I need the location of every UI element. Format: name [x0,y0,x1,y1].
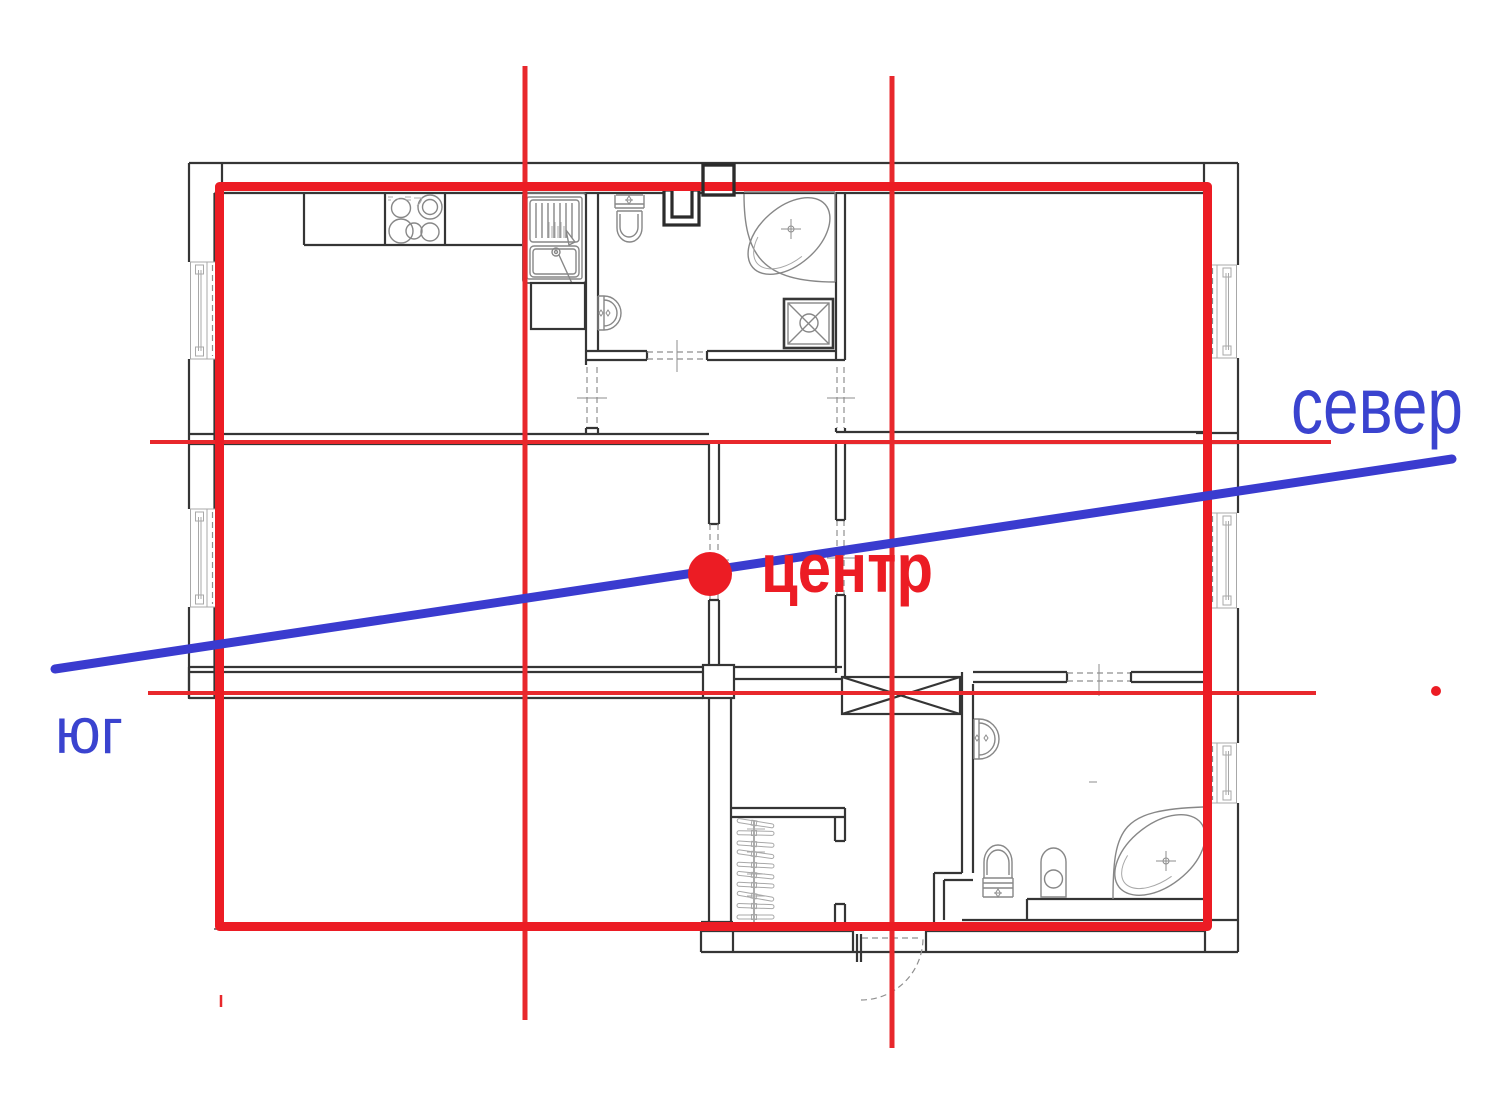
svg-text:север: север [1291,361,1463,450]
svg-text:юг: юг [55,694,123,767]
svg-text:центр: центр [761,529,933,607]
